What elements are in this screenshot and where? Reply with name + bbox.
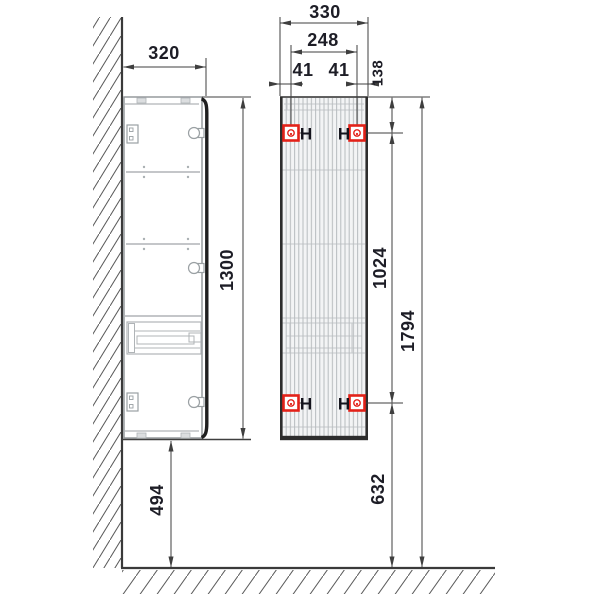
mounting-bracket-top-left <box>284 126 299 141</box>
cabinet-side-view <box>124 97 207 438</box>
cabinet-installation-drawing: 320 330 248 41 41 138 1300 1024 1794 494… <box>0 0 600 600</box>
hanger-mark-top-left: H <box>300 126 312 143</box>
dim-offset-right-label: 41 <box>328 61 349 79</box>
wall-anchor-bottom <box>127 393 138 411</box>
fluted-front <box>282 98 365 436</box>
wall-hatch <box>93 17 122 568</box>
mounting-bracket-bottom-left <box>284 396 299 411</box>
wall-anchor-top <box>127 125 138 143</box>
dim-overall-height-label: 1794 <box>399 310 417 352</box>
dim-floor-to-hole-label: 632 <box>369 473 387 505</box>
dim-hole-spacing-v-label: 1024 <box>371 247 389 289</box>
dim-top-to-hole-label: 138 <box>371 60 386 87</box>
dim-depth-label: 320 <box>148 44 180 62</box>
mounting-bracket-top-right <box>350 126 365 141</box>
mounting-bracket-bottom-right <box>350 396 365 411</box>
cabinet-front-view <box>280 97 368 440</box>
dim-hole-spacing-h-label: 248 <box>307 31 339 49</box>
hanger-mark-bottom-left: H <box>300 396 312 413</box>
hanger-mark-top-right: H <box>338 126 350 143</box>
dim-cabinet-height-label: 1300 <box>218 249 236 291</box>
dim-floor-clearance-label: 494 <box>148 484 166 516</box>
hanger-mark-bottom-right: H <box>338 396 350 413</box>
drawing-layer <box>0 0 600 600</box>
dim-offset-left-label: 41 <box>292 61 313 79</box>
floor-hatch <box>121 568 495 594</box>
dim-width-label: 330 <box>309 3 341 21</box>
